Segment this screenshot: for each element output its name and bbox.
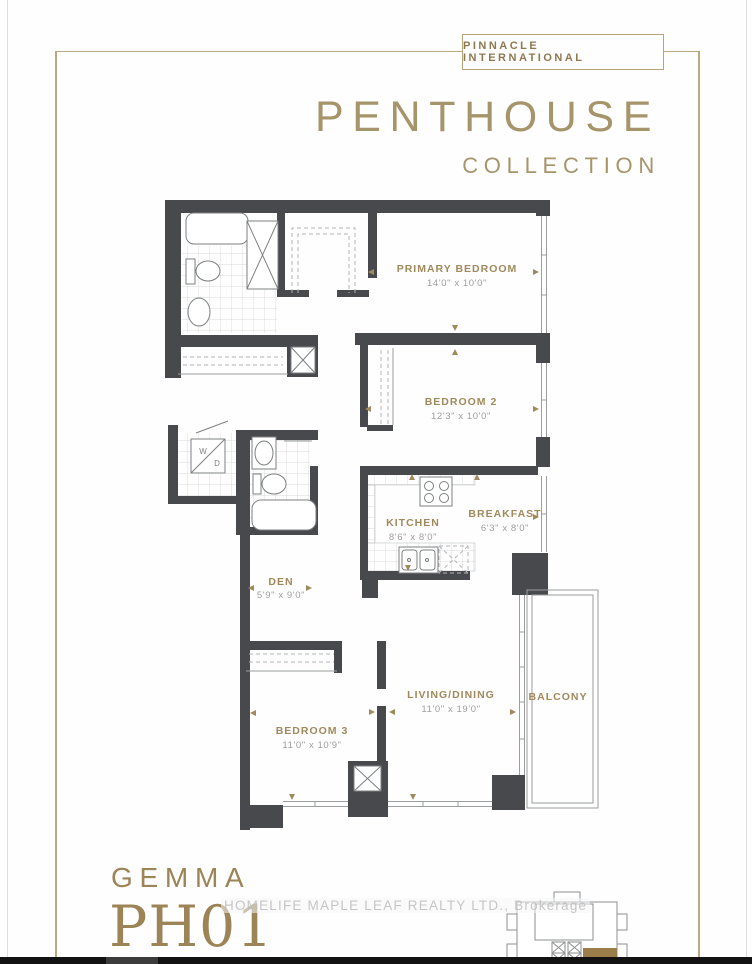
- room-label-kitchen: KITCHEN: [386, 517, 440, 529]
- toilet-ensuite: [196, 261, 220, 281]
- room-dims-living-dining: 11'0" x 19'0": [421, 704, 480, 715]
- brochure-page: { "brand": { "box_label": "PINNACLE INTE…: [0, 0, 752, 964]
- room-label-den: DEN: [268, 576, 293, 588]
- floorplan: PRIMARY BEDROOM 14'0" x 10'0" BEDROOM 2 …: [0, 0, 752, 964]
- bathtub-ensuite: [186, 213, 248, 244]
- washer-label: W: [199, 447, 207, 456]
- toilet-main-bath: [262, 474, 286, 494]
- dryer-label: D: [214, 459, 220, 468]
- room-label-primary-bedroom: PRIMARY BEDROOM: [397, 263, 518, 275]
- room-label-bedroom-3: BEDROOM 3: [276, 725, 349, 737]
- shaft-living: [354, 766, 381, 791]
- room-label-bedroom-2: BEDROOM 2: [425, 396, 498, 408]
- shaft-entry: [291, 347, 315, 373]
- page-bottom-bar-segment: [106, 957, 158, 964]
- entry-door-swing: [196, 421, 228, 433]
- room-dims-bedroom-3: 11'0" x 10'9": [282, 740, 341, 751]
- kitchen-sink: [399, 547, 438, 573]
- unit-model: GEMMA: [111, 862, 250, 894]
- room-label-breakfast: BREAKFAST: [468, 508, 541, 520]
- room-label-balcony: BALCONY: [529, 691, 588, 703]
- toilet-tank-ensuite: [186, 259, 195, 284]
- bathtub-main-bath: [252, 500, 316, 530]
- sink-ensuite: [188, 298, 210, 326]
- room-label-living-dining: LIVING/DINING: [407, 689, 495, 701]
- sink-main-bath: [255, 441, 273, 465]
- room-dims-primary-bedroom: 14'0" x 10'0": [427, 278, 487, 289]
- room-dims-den: 5'9" x 9'0": [257, 590, 305, 601]
- room-dims-breakfast: 6'3" x 8'0": [481, 523, 529, 534]
- brokerage-watermark: HOMELIFE MAPLE LEAF REALTY LTD., Brokera…: [221, 898, 590, 913]
- room-dims-bedroom-2: 12'3" x 10'0": [431, 411, 491, 422]
- room-dims-kitchen: 8'6" x 8'0": [389, 532, 437, 543]
- toilet-tank-main-bath: [253, 474, 261, 494]
